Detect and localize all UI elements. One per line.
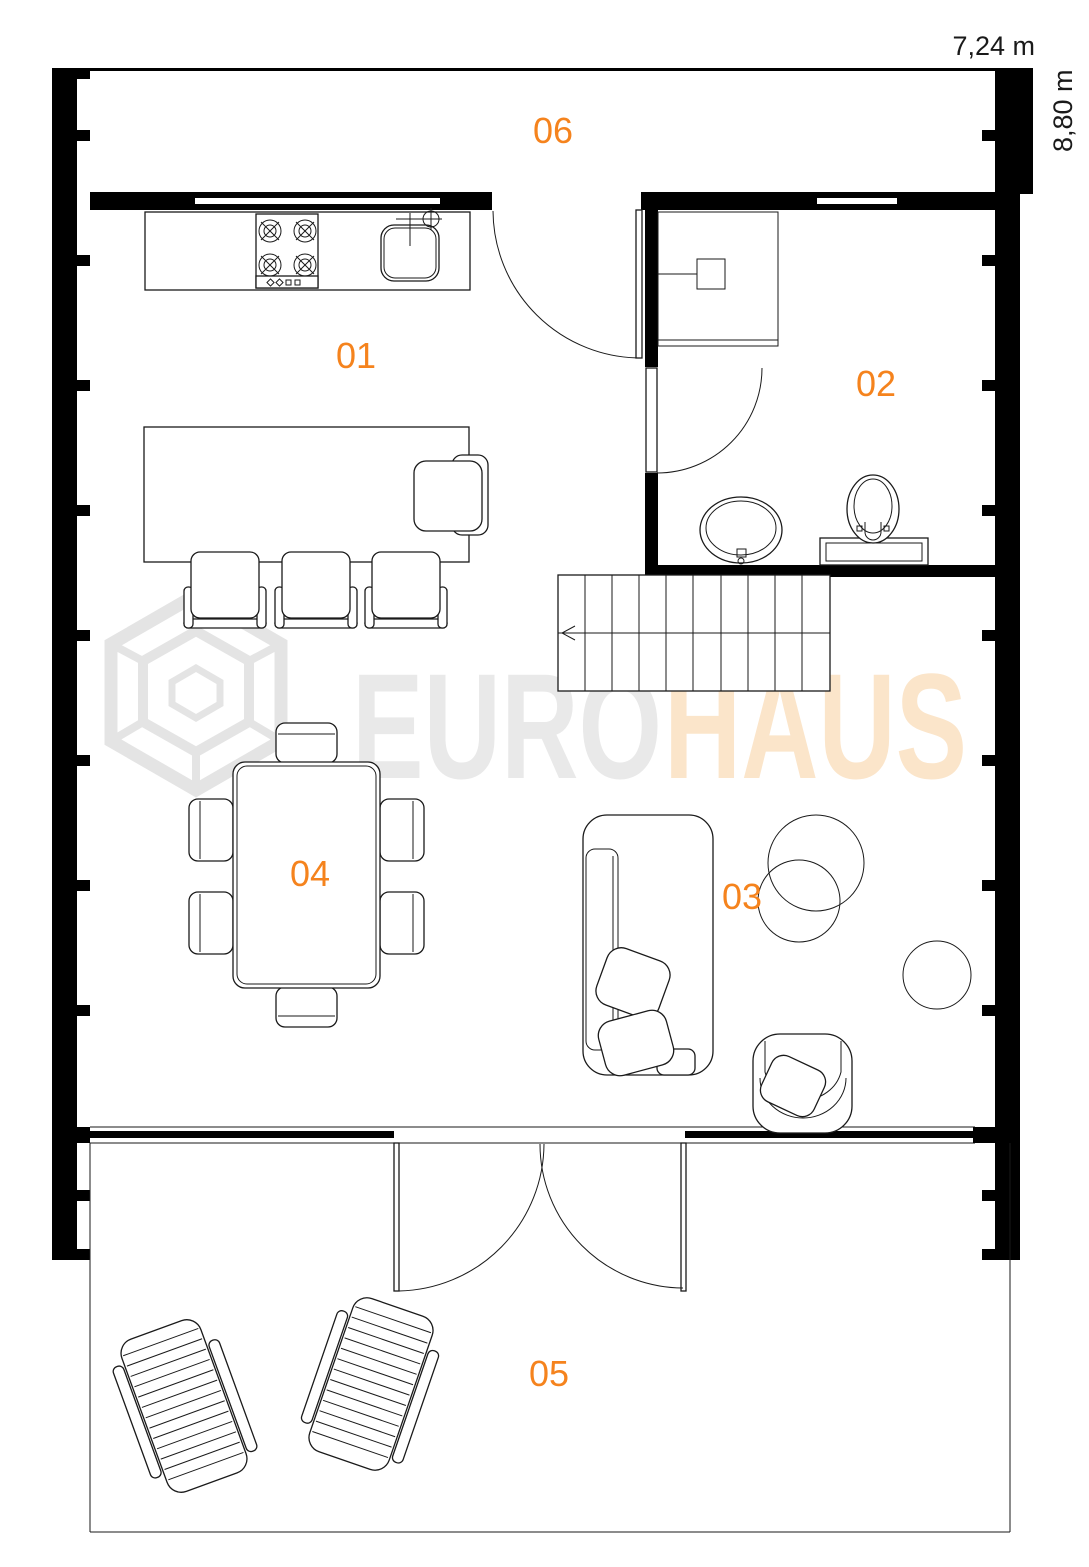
dining-chair [276,987,337,1027]
bar-stool [275,552,357,628]
room-label-03: 03 [722,876,762,917]
bathroom-door-leaf [646,368,657,472]
entrance-door [493,210,642,358]
room-label-05: 05 [529,1353,569,1394]
entrance-door-leaf [636,210,642,358]
sun-loungers [105,1290,450,1501]
terrace-door-right-arc [540,1144,683,1288]
floor-plan-page: EURO HAUS [0,0,1089,1567]
kitchen-island [144,427,488,562]
floor-plan-svg: EURO HAUS [0,0,1089,1567]
bar-stool [365,552,447,628]
bar-stools [184,552,447,628]
plant-circle [758,860,840,942]
armchair [753,1034,852,1133]
sofa [583,815,713,1079]
dining-chair [380,799,424,861]
plant-circle [903,941,971,1009]
dimension-width-label: 7,24 m [952,31,1035,61]
bathroom-door [646,368,762,473]
bathroom-door-swing-arc [657,368,762,473]
toilet [820,475,928,565]
shower [658,212,778,346]
kitchen-window [195,192,440,210]
room-label-01: 01 [336,335,376,376]
terrace-door-right-leaf [681,1143,686,1291]
washbasin [700,497,782,564]
kitchen-counter [145,208,470,290]
terrace-wall-windows [77,1127,995,1143]
terrace-door-left-leaf [394,1143,399,1291]
sun-lounger [105,1311,264,1501]
right-wall-ticks [982,130,995,1260]
dining-chair [380,892,424,954]
room-label-06: 06 [533,110,573,151]
staircase [558,575,830,691]
plants [758,815,971,1009]
terrace-double-door [394,1143,686,1291]
dining-chair [276,723,337,763]
bar-stool [184,552,266,628]
room-label-02: 02 [856,363,896,404]
terrace-door-left-arc [399,1144,544,1291]
island-chair [414,455,488,535]
bathroom-window [817,192,897,210]
stove [256,214,318,288]
dining-chair [189,892,233,954]
left-wall-ticks [77,71,90,1260]
room-label-04: 04 [290,853,330,894]
entrance-door-swing-arc [493,211,641,358]
sun-lounger [293,1290,450,1479]
dining-chair [189,799,233,861]
dimension-height-label: 8,80 m [1048,69,1078,152]
